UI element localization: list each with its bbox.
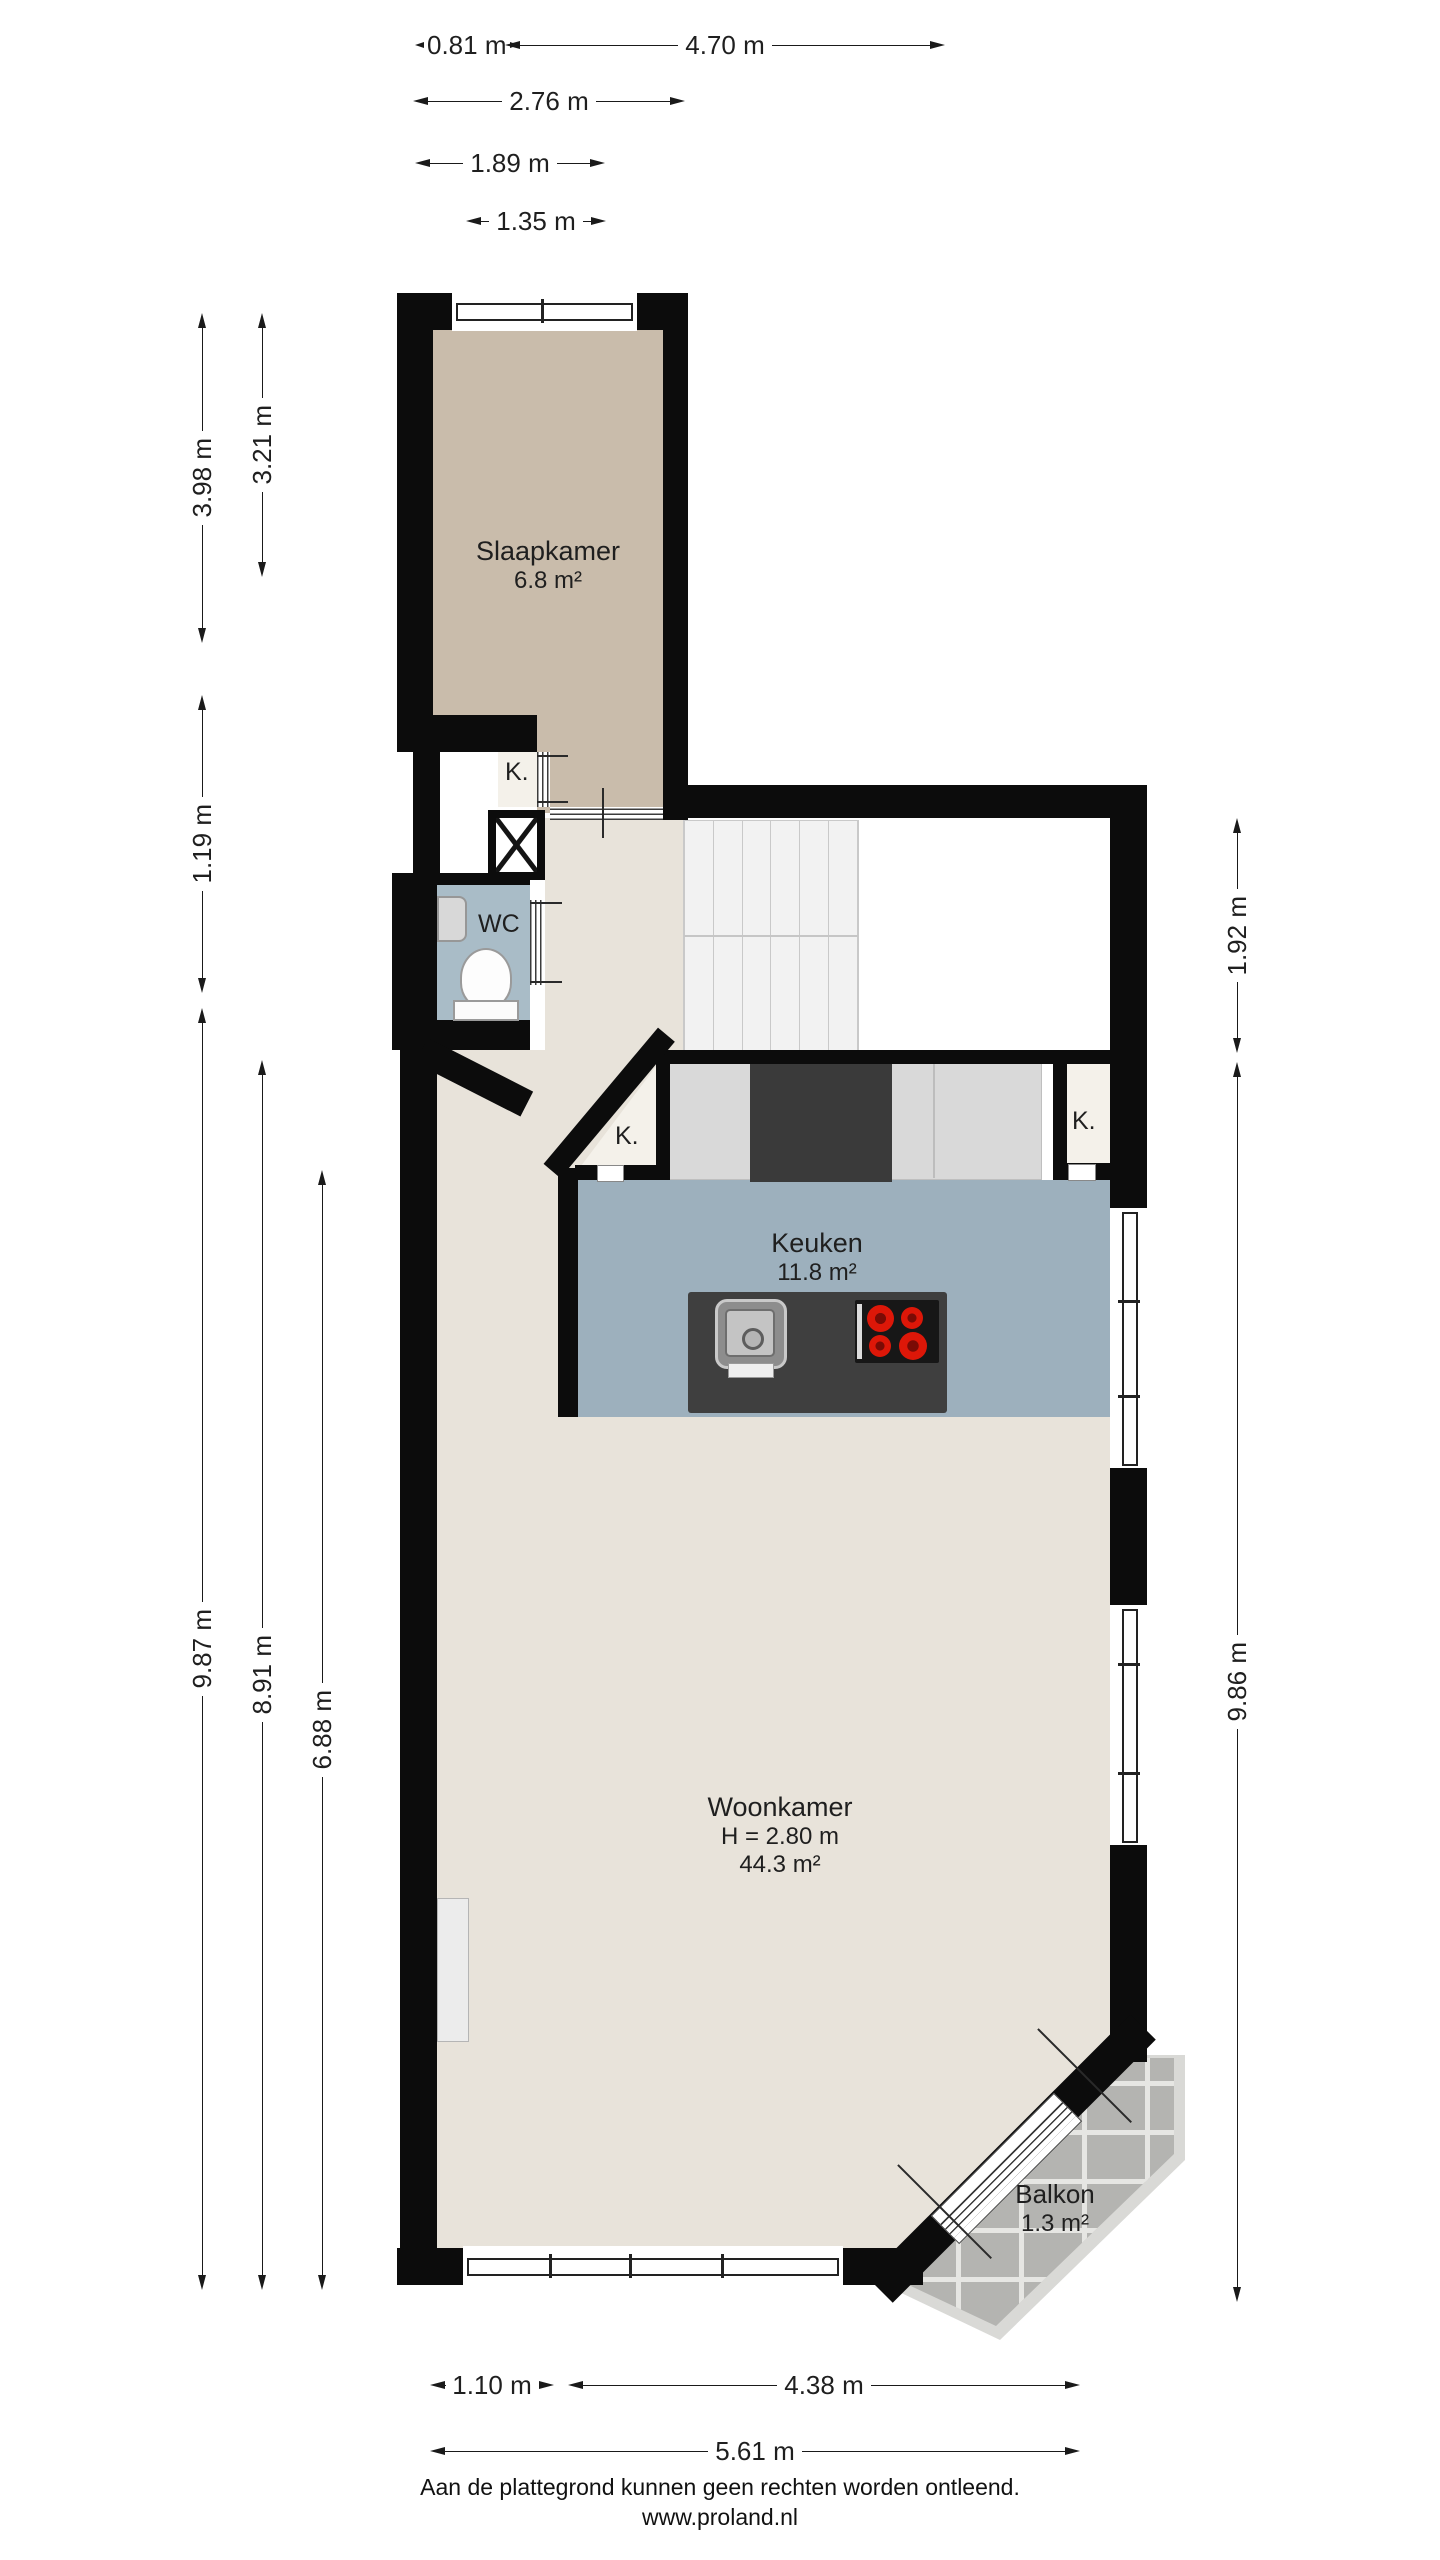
door-tick xyxy=(530,902,562,904)
dimension-label: 3.21 m xyxy=(249,398,275,492)
livingroom-area: 44.3 m² xyxy=(630,1851,930,1879)
wall-bottom-left-chunk xyxy=(397,2248,463,2285)
dimension-label: 5.61 m xyxy=(708,2438,802,2464)
dimension-left-2: 1.19 m xyxy=(190,695,214,993)
dimension-top-0: 0.81 m xyxy=(415,32,493,58)
kitchen-tall-unit xyxy=(750,1058,892,1182)
toilet-tank xyxy=(453,1000,519,1021)
dimension-bottom-0: 1.10 m xyxy=(430,2372,554,2398)
dimension-top-4: 1.35 m xyxy=(466,208,606,234)
bedroom-interior-window xyxy=(550,807,663,820)
footer-disclaimer: Aan de plattegrond kunnen geen rechten w… xyxy=(0,2474,1440,2501)
livingroom-window-bottom-glass xyxy=(467,2258,839,2276)
dimension-label: 1.19 m xyxy=(189,797,215,891)
balcony-label: Balkon 1.3 m² xyxy=(955,2180,1155,2237)
dimension-top-2: 2.76 m xyxy=(413,88,685,114)
bedroom-window-glass xyxy=(456,303,633,321)
wall-kitchen-west xyxy=(558,1168,578,1417)
dimension-label: 9.86 m xyxy=(1224,1635,1250,1729)
dimension-label: 6.88 m xyxy=(309,1683,335,1777)
dimension-left-0: 3.98 m xyxy=(190,313,214,643)
hall-closet-label: K. xyxy=(505,758,529,787)
dimension-bottom-2: 5.61 m xyxy=(430,2438,1080,2464)
dimension-top-1: 4.70 m xyxy=(505,32,945,58)
door-tick xyxy=(537,801,568,803)
dimension-label: 9.87 m xyxy=(189,1602,215,1696)
wall-left-mid xyxy=(413,752,440,873)
dimension-label: 0.81 m xyxy=(424,32,510,58)
wall-wc-bottom xyxy=(392,1020,530,1050)
kitchen-closet-right-label: K. xyxy=(1072,1107,1096,1136)
dimension-bottom-1: 4.38 m xyxy=(568,2372,1080,2398)
livingroom-window-right-glass xyxy=(1122,1609,1138,1843)
dimension-right-0: 1.92 m xyxy=(1225,818,1249,1053)
wc-label: WC xyxy=(478,910,520,939)
radiator xyxy=(437,1898,469,2042)
door-tick xyxy=(537,755,568,757)
faucet xyxy=(742,1328,764,1350)
kitchen-label: Keuken 11.8 m² xyxy=(667,1228,967,1287)
wall-under-stairs xyxy=(655,1050,1110,1064)
floorplan: Slaapkamer 6.8 m² K. WC K. K. Keuken 11.… xyxy=(0,0,1440,2560)
hall-closet-door xyxy=(537,752,550,807)
wall-right-upper xyxy=(1110,785,1147,1208)
wc-door xyxy=(530,900,545,985)
window-muntin xyxy=(1118,1395,1140,1398)
stair-flight-upper xyxy=(684,821,858,937)
livingroom-height: H = 2.80 m xyxy=(630,1823,930,1851)
dimension-left-5: 6.88 m xyxy=(310,1170,334,2290)
window-muntin xyxy=(1118,1663,1140,1666)
bedroom-window-mullion xyxy=(541,299,544,323)
door-tick xyxy=(530,981,562,983)
bedroom-area: 6.8 m² xyxy=(398,567,698,595)
kitchen-window-right-glass xyxy=(1122,1212,1138,1466)
counter-seam xyxy=(933,1060,935,1178)
toilet-bowl xyxy=(460,948,512,1008)
kitchen-name: Keuken xyxy=(667,1228,967,1259)
wall-right-mid xyxy=(1110,1468,1147,1605)
window-tick xyxy=(602,788,604,838)
hallway-floor-upper xyxy=(545,818,683,1060)
dimension-label: 8.91 m xyxy=(249,1628,275,1722)
bedroom-floor xyxy=(433,330,663,723)
dimension-label: 4.38 m xyxy=(777,2372,871,2398)
bedroom-label: Slaapkamer 6.8 m² xyxy=(398,536,698,595)
dimension-label: 1.89 m xyxy=(463,150,557,176)
kitchen-closet-left-label: K. xyxy=(615,1122,639,1151)
dimension-label: 4.70 m xyxy=(678,32,772,58)
stair-flight-lower xyxy=(684,937,858,1051)
wc-sink xyxy=(437,896,467,942)
balcony-area: 1.3 m² xyxy=(955,2210,1155,2238)
dimension-left-4: 8.91 m xyxy=(250,1060,274,2290)
window-mullion xyxy=(549,2254,552,2278)
window-muntin xyxy=(1118,1300,1140,1303)
bedroom-name: Slaapkamer xyxy=(398,536,698,567)
livingroom-label: Woonkamer H = 2.80 m 44.3 m² xyxy=(630,1792,930,1878)
burner xyxy=(899,1332,927,1360)
closet-right-door-gap xyxy=(1068,1164,1096,1181)
footer-website: www.proland.nl xyxy=(0,2504,1440,2531)
wall-closet-left-right xyxy=(656,1058,670,1180)
burner xyxy=(867,1305,894,1332)
island-cooktop xyxy=(855,1300,939,1363)
dimension-label: 1.35 m xyxy=(489,208,583,234)
wall-closet-right-left xyxy=(1053,1050,1067,1163)
dimension-label: 3.98 m xyxy=(189,431,215,525)
burner xyxy=(901,1307,923,1329)
burner xyxy=(869,1335,891,1357)
window-muntin xyxy=(1118,1772,1140,1775)
dimension-top-3: 1.89 m xyxy=(415,150,605,176)
window-mullion xyxy=(629,2254,632,2278)
wall-main-top xyxy=(663,785,1145,818)
window-mullion xyxy=(721,2254,724,2278)
dimension-left-3: 9.87 m xyxy=(190,1008,214,2290)
wall-main-left xyxy=(400,1050,437,2285)
dimension-label: 2.76 m xyxy=(502,88,596,114)
shaft-box xyxy=(496,818,537,872)
dimension-label: 1.10 m xyxy=(445,2372,539,2398)
wall-bedroom-left xyxy=(397,293,433,752)
dimension-label: 1.92 m xyxy=(1224,889,1250,983)
arrow-left xyxy=(415,42,424,48)
balcony-name: Balkon xyxy=(955,2180,1155,2210)
dimension-left-1: 3.21 m xyxy=(250,313,274,577)
bedroom-floor-lower xyxy=(537,723,663,813)
sink-drainer xyxy=(728,1363,774,1378)
dimension-right-1: 9.86 m xyxy=(1225,1062,1249,2302)
kitchen-area: 11.8 m² xyxy=(667,1259,967,1287)
closet-left-door-gap xyxy=(597,1165,624,1182)
livingroom-name: Woonkamer xyxy=(630,1792,930,1823)
island-sink xyxy=(715,1299,787,1369)
staircase xyxy=(683,820,859,1052)
wall-bedroom-step xyxy=(397,715,537,752)
